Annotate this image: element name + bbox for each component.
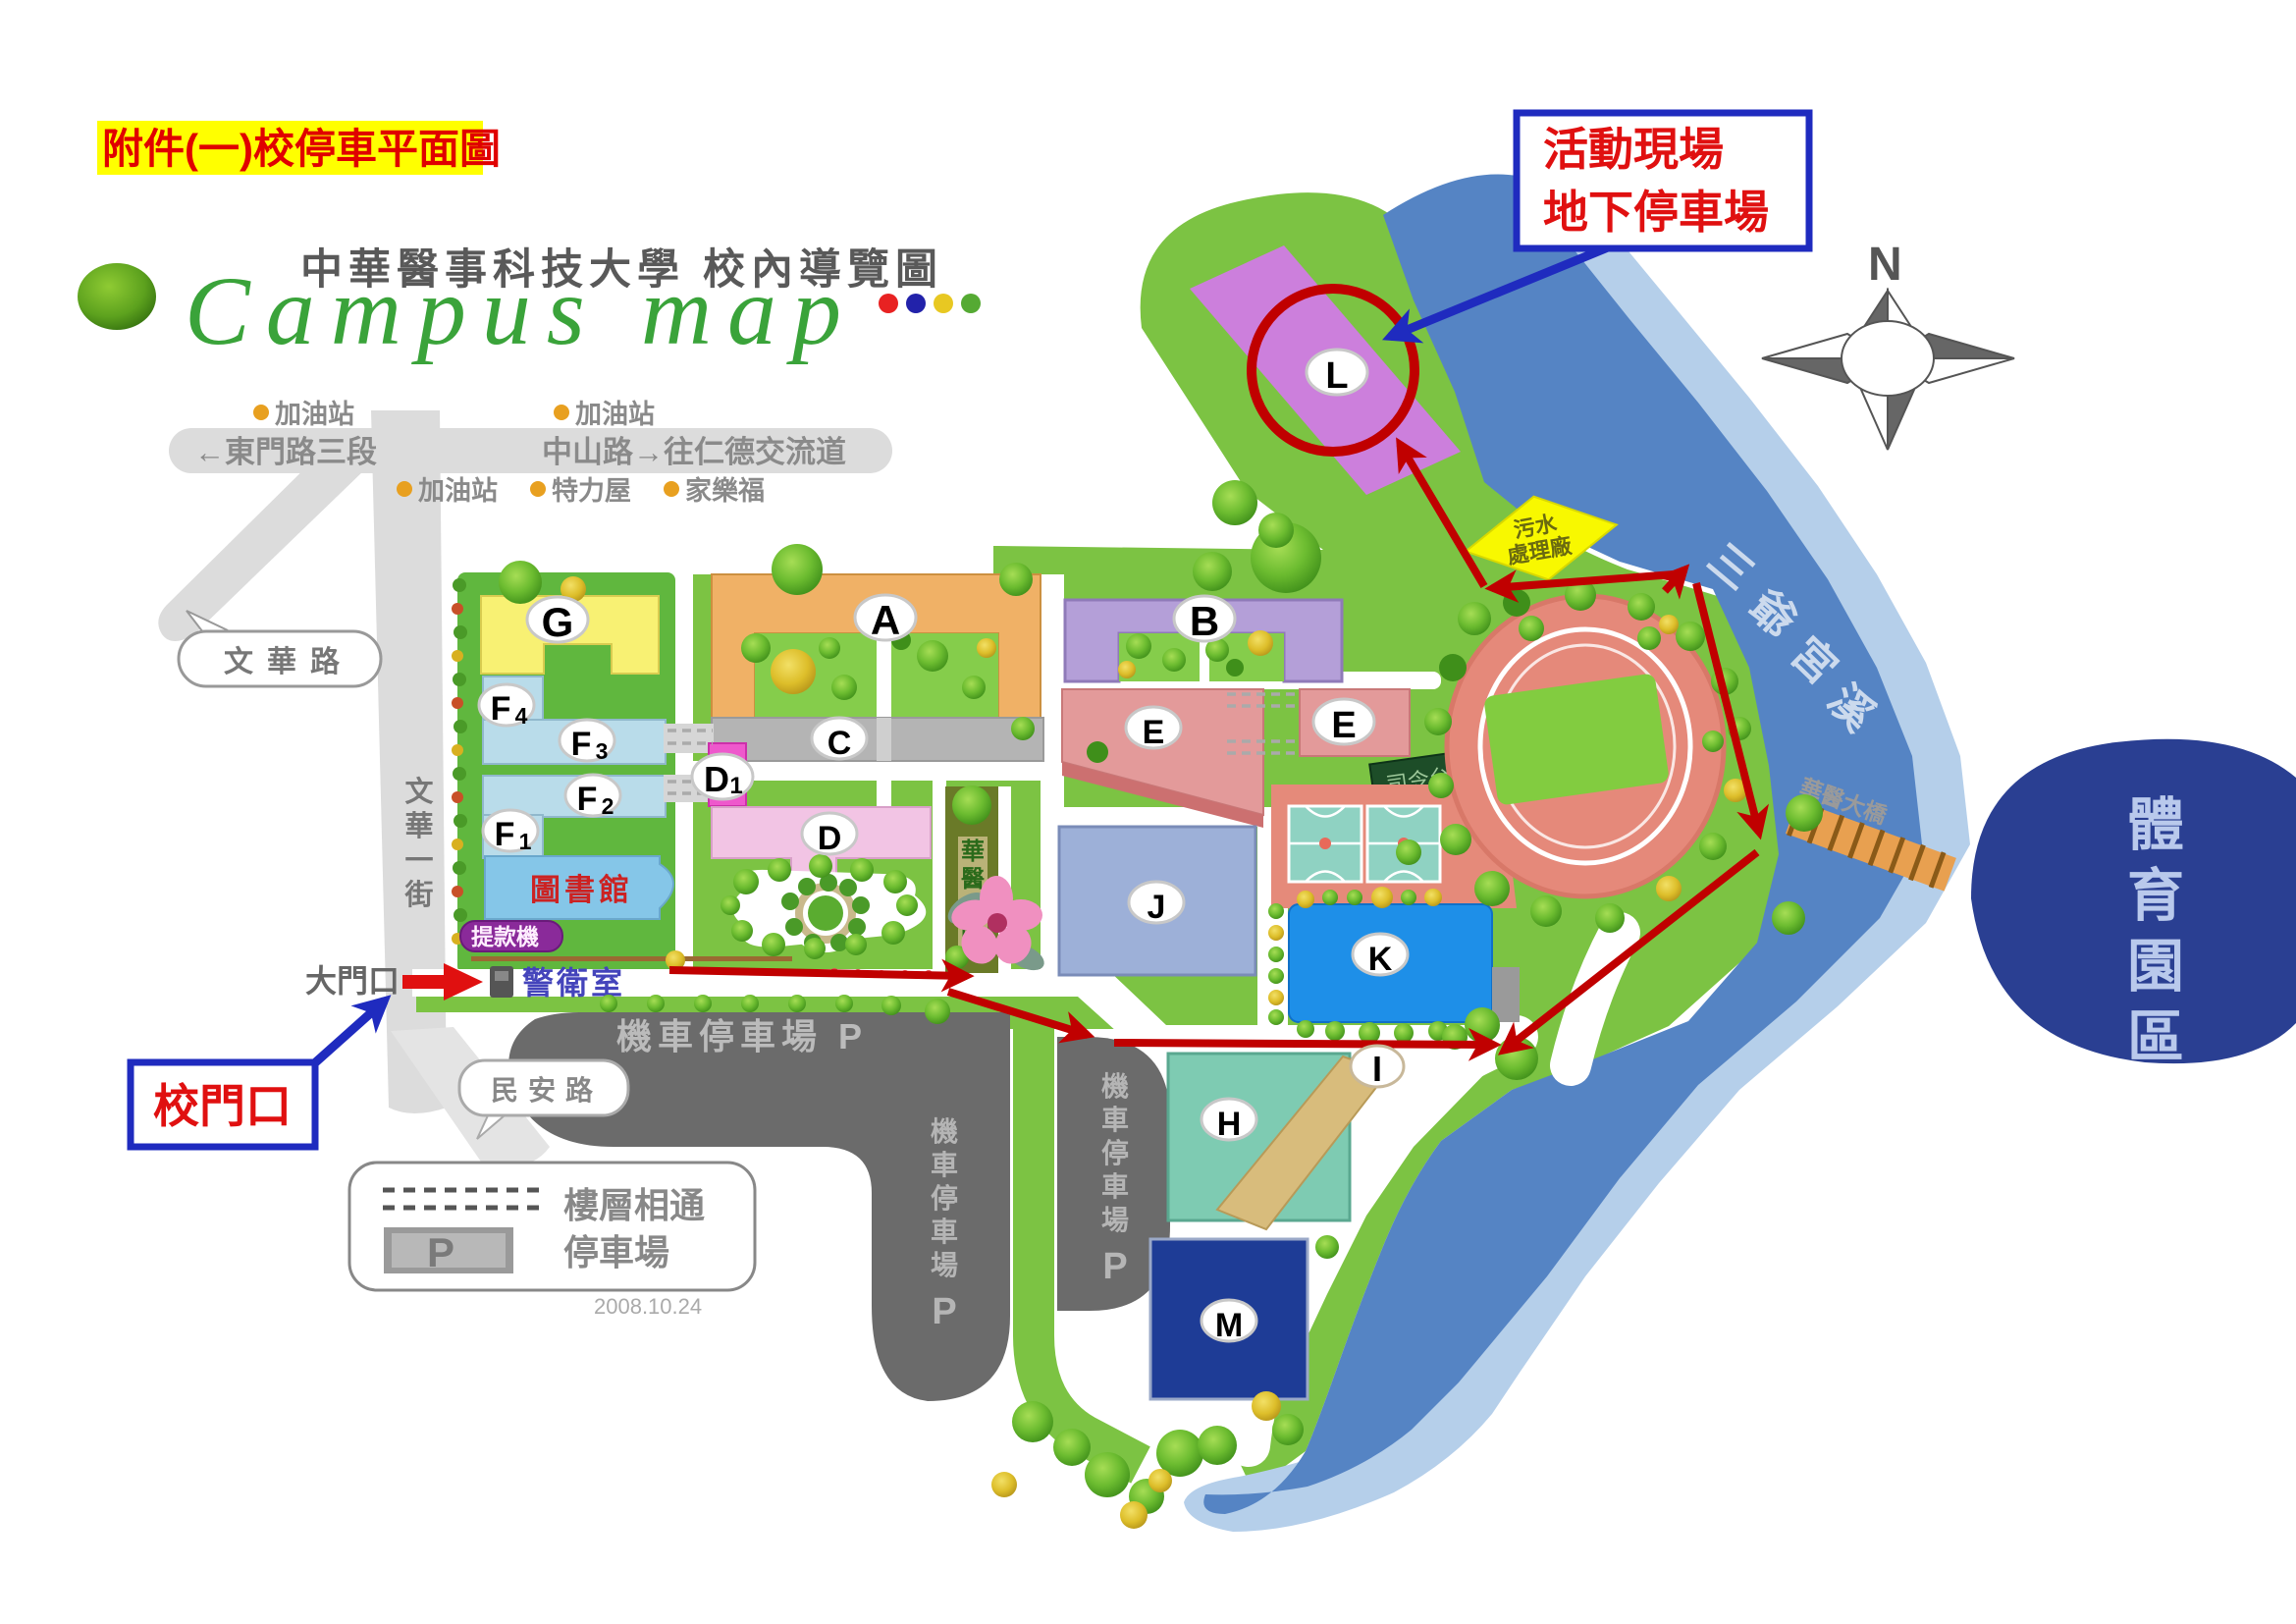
svg-text:D: D	[704, 759, 729, 799]
svg-text:E: E	[1331, 705, 1356, 746]
svg-text:區: 區	[2127, 1005, 2184, 1069]
svg-text:車: 車	[1101, 1105, 1129, 1135]
svg-text:P: P	[427, 1229, 454, 1275]
svg-text:2: 2	[602, 793, 614, 819]
svg-text:特力屋: 特力屋	[552, 476, 631, 506]
svg-text:停: 停	[931, 1182, 958, 1214]
svg-text:車: 車	[1101, 1171, 1129, 1202]
svg-text:P: P	[932, 1291, 956, 1332]
svg-text:機: 機	[931, 1116, 958, 1147]
svg-text:育: 育	[2127, 864, 2184, 928]
svg-text:Campus map: Campus map	[185, 256, 857, 365]
svg-text:機車停車場 P: 機車停車場 P	[616, 1016, 868, 1056]
svg-text:P: P	[1102, 1246, 1127, 1287]
svg-text:附件(一)校停車平面圖: 附件(一)校停車平面圖	[102, 126, 501, 172]
svg-text:加油站: 加油站	[575, 400, 655, 429]
svg-text:C: C	[828, 725, 852, 762]
svg-text:F: F	[495, 816, 515, 853]
svg-text:4: 4	[515, 703, 528, 729]
svg-text:3: 3	[596, 738, 609, 764]
svg-text:華: 華	[961, 839, 985, 865]
svg-text:活動現場: 活動現場	[1543, 124, 1724, 175]
svg-text:F: F	[577, 781, 598, 818]
svg-text:I: I	[1372, 1049, 1382, 1089]
svg-text:圖書館: 圖書館	[530, 873, 633, 907]
svg-text:停: 停	[1101, 1137, 1129, 1168]
svg-text:J: J	[1148, 889, 1166, 926]
svg-text:L: L	[1325, 355, 1348, 397]
svg-text:F: F	[491, 690, 511, 728]
svg-text:加油站: 加油站	[275, 400, 354, 429]
svg-text:中山路→往仁德交流道: 中山路→往仁德交流道	[542, 435, 846, 469]
svg-text:大門口: 大門口	[305, 963, 400, 999]
svg-text:機: 機	[1101, 1071, 1129, 1102]
svg-text:M: M	[1215, 1307, 1243, 1344]
svg-text:2008.10.24: 2008.10.24	[594, 1294, 702, 1319]
svg-text:←東門路三段: ←東門路三段	[194, 435, 377, 469]
svg-text:體: 體	[2127, 793, 2184, 857]
svg-text:街: 街	[403, 878, 433, 911]
svg-text:車: 車	[931, 1150, 958, 1180]
svg-text:場: 場	[1101, 1205, 1129, 1235]
svg-text:華: 華	[404, 810, 433, 842]
svg-text:1: 1	[519, 829, 532, 854]
svg-text:樓層相通: 樓層相通	[563, 1185, 705, 1225]
svg-text:提款機: 提款機	[471, 924, 539, 949]
svg-text:校門口: 校門口	[153, 1080, 292, 1132]
svg-text:醫: 醫	[961, 866, 985, 893]
svg-text:地下停車場: 地下停車場	[1543, 187, 1769, 238]
svg-text:E: E	[1143, 714, 1165, 751]
svg-text:文華路: 文華路	[224, 645, 353, 678]
svg-text:民安路: 民安路	[491, 1075, 603, 1106]
svg-text:一: 一	[404, 845, 433, 877]
svg-text:D: D	[818, 820, 842, 857]
svg-text:K: K	[1368, 941, 1393, 978]
svg-text:家樂福: 家樂福	[685, 475, 765, 506]
svg-text:N: N	[1868, 239, 1902, 291]
svg-text:G: G	[542, 599, 574, 645]
svg-text:B: B	[1190, 598, 1219, 644]
svg-text:停車場: 停車場	[563, 1232, 669, 1272]
svg-text:F: F	[571, 726, 592, 763]
svg-text:1: 1	[729, 773, 742, 799]
svg-text:A: A	[871, 597, 900, 643]
svg-text:文: 文	[404, 775, 434, 808]
svg-text:加油站: 加油站	[418, 476, 498, 506]
svg-text:場: 場	[931, 1250, 958, 1280]
svg-text:園: 園	[2127, 935, 2184, 999]
svg-text:H: H	[1217, 1106, 1242, 1143]
svg-text:車: 車	[931, 1217, 958, 1247]
